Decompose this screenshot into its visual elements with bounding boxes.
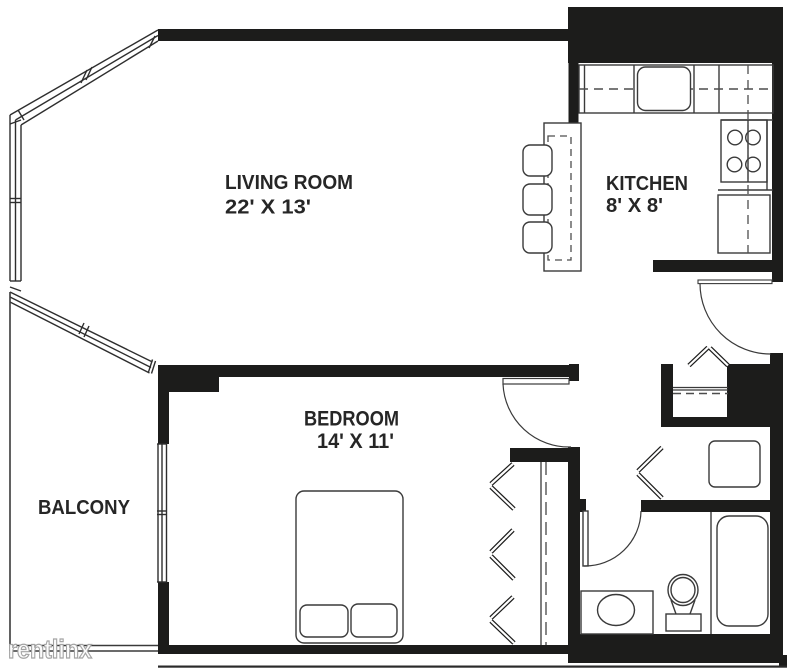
svg-text:rentlinx: rentlinx (8, 634, 92, 664)
svg-text:LIVING ROOM: LIVING ROOM (225, 172, 353, 194)
svg-text:22' X 13': 22' X 13' (225, 197, 311, 219)
svg-text:8' X 8': 8' X 8' (606, 195, 663, 217)
svg-text:BALCONY: BALCONY (38, 497, 131, 519)
svg-text:BEDROOM: BEDROOM (304, 408, 399, 431)
svg-text:KITCHEN: KITCHEN (606, 173, 688, 195)
svg-text:14' X 11': 14' X 11' (317, 430, 394, 453)
